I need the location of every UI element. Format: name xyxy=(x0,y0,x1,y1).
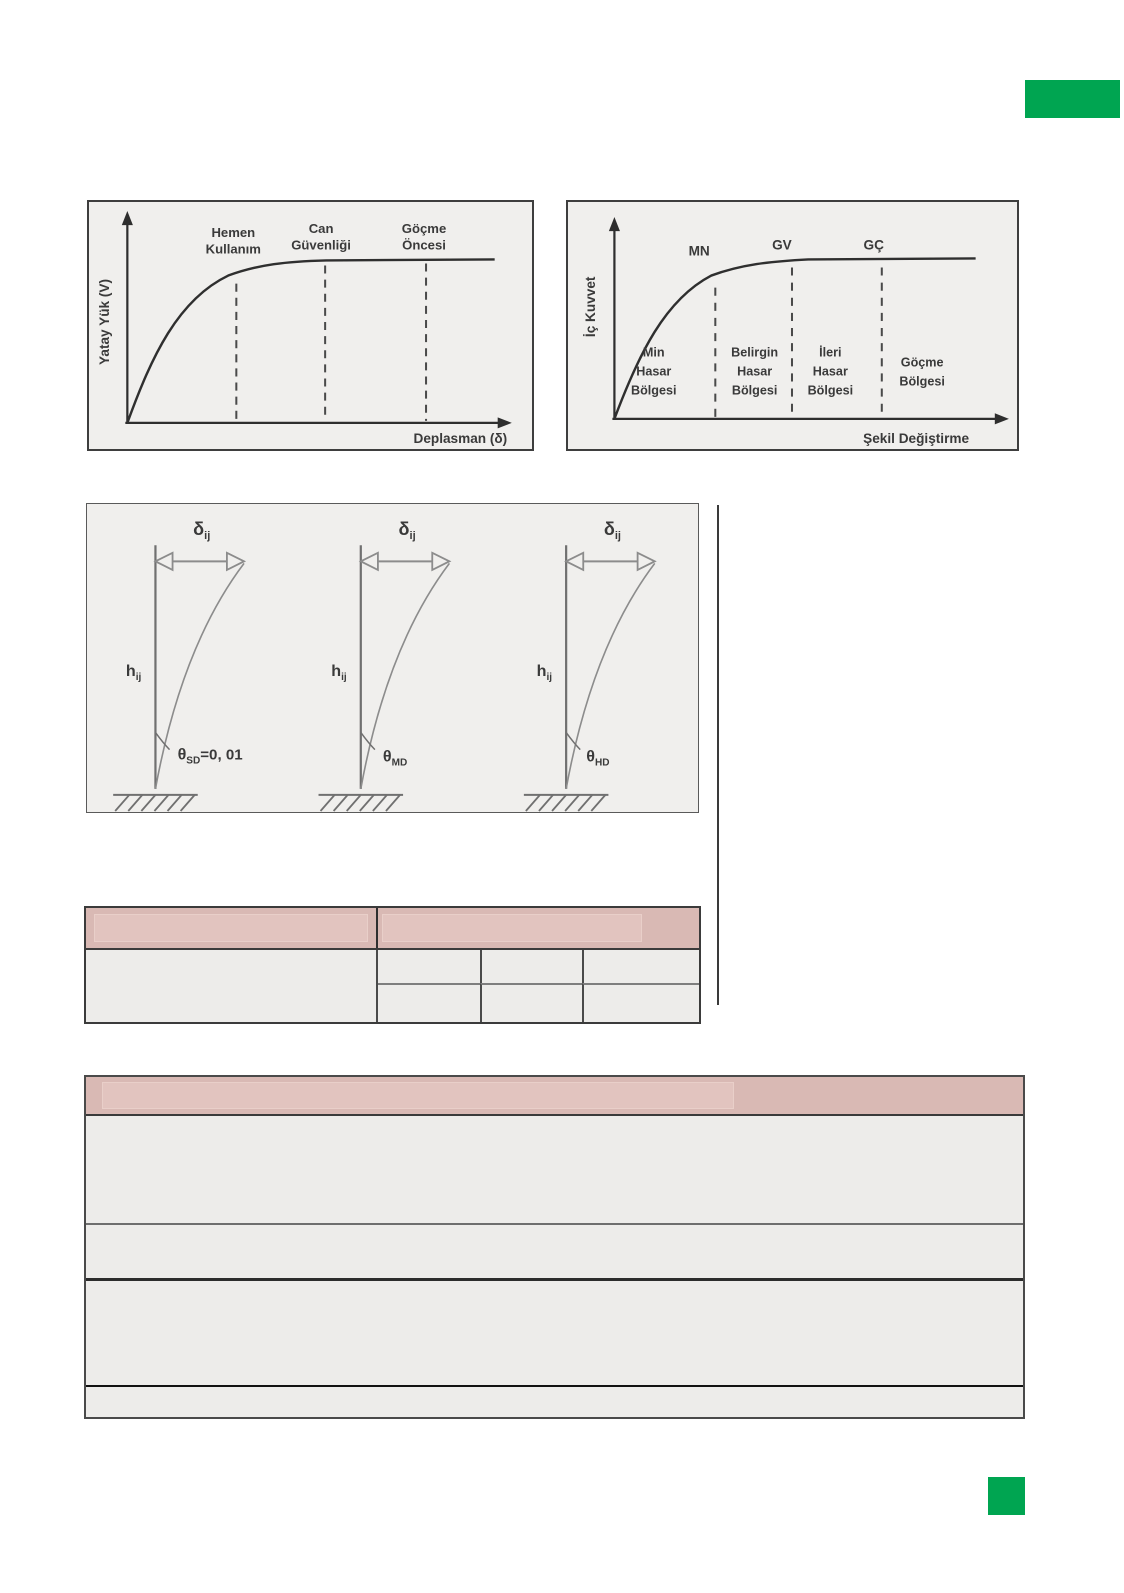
redacted-label xyxy=(382,914,642,942)
middle-table-cell xyxy=(378,983,480,1022)
bottom-table-row xyxy=(86,1116,1023,1225)
column-diagram-md: δij hij θMD xyxy=(319,519,450,811)
chart2-svg: MN GV GÇ Min Hasar Bölgesi Belirgin Hasa… xyxy=(568,202,1017,449)
chart1-marker2-line2: Güvenliği xyxy=(291,237,351,252)
column1-arrowhead-left xyxy=(155,553,172,570)
chart2-region2-line2: Hasar xyxy=(737,364,772,378)
chart-lateral-load-displacement: Hemen Kullanım Can Güvenliği Göçme Önces… xyxy=(87,200,534,451)
redacted-label xyxy=(94,914,368,942)
column2-deflected-curve xyxy=(361,563,450,788)
figure-column-drift-diagrams: δij hij θSD=0, 01 δij hij θMD xyxy=(86,503,699,813)
middle-table xyxy=(84,906,701,1024)
column1-delta-label: δij xyxy=(193,519,210,542)
chart1-marker3-line2: Öncesi xyxy=(402,237,446,252)
bottom-table-row xyxy=(86,1225,1023,1281)
chart2-region1-line1: Min xyxy=(643,345,665,359)
chart1-y-axis-label: Yatay Yük (V) xyxy=(97,279,112,365)
column3-theta-label: θHD xyxy=(586,748,609,769)
green-accent-bar xyxy=(1025,80,1120,118)
column3-height-label: hij xyxy=(537,662,553,683)
chart2-region1-line3: Bölgesi xyxy=(631,384,677,398)
column3-delta-label: δij xyxy=(604,519,621,542)
chart1-y-axis-arrow xyxy=(122,211,133,225)
bottom-table xyxy=(84,1075,1025,1419)
chart2-y-axis-label: İç Kuvvet xyxy=(583,276,598,337)
column1-ground-hatch xyxy=(115,795,195,811)
chart1-marker1-line1: Hemen xyxy=(211,225,255,240)
chart2-marker-mn: MN xyxy=(689,243,710,258)
chart2-x-axis-arrow xyxy=(995,413,1009,424)
chart2-marker-gc: GÇ xyxy=(864,237,885,252)
bottom-table-row xyxy=(86,1281,1023,1387)
column2-theta-label: θMD xyxy=(383,748,407,769)
middle-table-grid xyxy=(378,950,699,1022)
middle-table-cell xyxy=(378,950,480,983)
vertical-rule xyxy=(717,505,719,1005)
middle-table-cell xyxy=(582,983,699,1022)
bottom-table-header-row xyxy=(86,1077,1023,1116)
column3-arrowhead-left xyxy=(566,553,583,570)
chart1-x-axis-label: Deplasman (δ) xyxy=(413,431,507,446)
middle-table-header-cell-right xyxy=(378,908,699,948)
column1-height-label: hij xyxy=(126,662,142,683)
green-accent-square xyxy=(988,1477,1025,1515)
column3-ground-hatch xyxy=(526,795,606,811)
middle-table-cell xyxy=(480,983,582,1022)
chart2-region4-line1: Göçme xyxy=(901,355,944,369)
column2-arrowhead-left xyxy=(361,553,378,570)
column-diagram-sd: δij hij θSD=0, 01 xyxy=(113,519,244,811)
chart2-x-axis-label: Şekil Değiştirme xyxy=(863,431,969,446)
chart2-region2-line3: Bölgesi xyxy=(732,384,778,398)
middle-table-left-cell xyxy=(86,950,378,1022)
chart2-y-axis-arrow xyxy=(609,217,620,231)
column-diagram-hd: δij hij θHD xyxy=(524,519,655,811)
chart2-marker-gv: GV xyxy=(772,237,792,252)
middle-table-body xyxy=(86,950,699,1022)
chart1-marker2-line1: Can xyxy=(309,221,334,236)
middle-table-header-cell-left xyxy=(86,908,378,948)
column2-ground-hatch xyxy=(321,795,401,811)
chart1-marker1-line2: Kullanım xyxy=(206,241,261,256)
chart1-svg: Hemen Kullanım Can Güvenliği Göçme Önces… xyxy=(89,202,532,449)
chart1-marker3-line1: Göçme xyxy=(402,221,446,236)
figure-svg: δij hij θSD=0, 01 δij hij θMD xyxy=(87,504,698,812)
chart2-region1-line2: Hasar xyxy=(636,364,671,378)
column2-height-label: hij xyxy=(331,662,347,683)
chart-internal-force-deformation: MN GV GÇ Min Hasar Bölgesi Belirgin Hasa… xyxy=(566,200,1019,451)
chart2-region3-line1: İleri xyxy=(819,344,841,359)
middle-table-cell xyxy=(480,950,582,983)
chart1-x-axis-arrow xyxy=(498,417,512,428)
chart2-region3-line3: Bölgesi xyxy=(808,384,854,398)
chart2-region2-line1: Belirgin xyxy=(731,345,778,359)
document-page: Hemen Kullanım Can Güvenliği Göçme Önces… xyxy=(0,0,1124,1593)
column3-deflected-curve xyxy=(566,563,655,788)
chart2-region3-line2: Hasar xyxy=(813,364,848,378)
column1-theta-label: θSD=0, 01 xyxy=(178,746,243,767)
redacted-label xyxy=(102,1082,734,1109)
chart1-capacity-curve xyxy=(127,259,494,422)
middle-table-header-row xyxy=(86,908,699,950)
bottom-table-row xyxy=(86,1387,1023,1417)
middle-table-cell xyxy=(582,950,699,983)
chart2-region4-line2: Bölgesi xyxy=(899,375,945,389)
column2-delta-label: δij xyxy=(399,519,416,542)
